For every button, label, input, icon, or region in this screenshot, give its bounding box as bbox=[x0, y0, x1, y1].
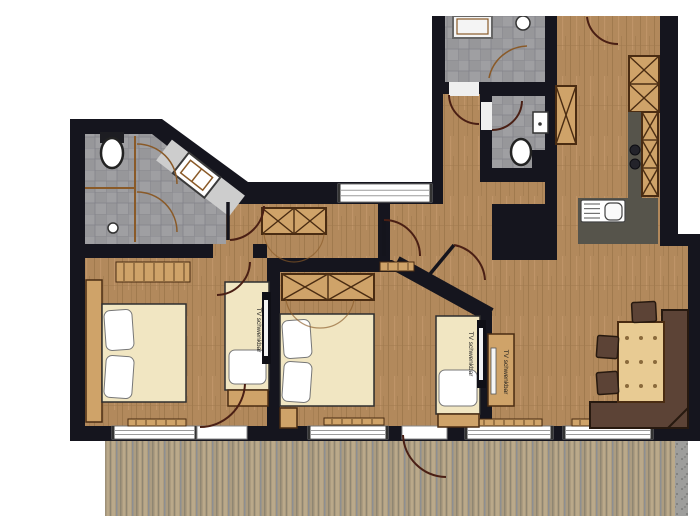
corridor-floor bbox=[443, 94, 480, 204]
balcony-deck bbox=[105, 441, 688, 516]
window-bedroom1 bbox=[112, 426, 197, 439]
window-hall bbox=[338, 184, 432, 202]
wardrobe-hallway bbox=[262, 208, 326, 234]
pillow bbox=[282, 319, 313, 359]
svg-text:TV schwenkbar: TV schwenkbar bbox=[467, 332, 474, 378]
balcony-door-bedroom2-opening bbox=[402, 426, 447, 439]
shower-pedestal-sink bbox=[516, 16, 530, 30]
tv-screen-bedroom1 bbox=[264, 300, 268, 356]
chair bbox=[631, 301, 656, 322]
toilet-wc-bowl bbox=[511, 139, 531, 165]
table-peg bbox=[639, 336, 643, 340]
sideboard-bedroom1 bbox=[116, 262, 190, 282]
kitchen-tall-cabinet bbox=[629, 56, 659, 112]
window-bedroom2 bbox=[308, 426, 388, 439]
wardrobe-bedroom2 bbox=[282, 274, 374, 300]
label-tv-bedroom1: TV schwenkbar bbox=[255, 308, 262, 354]
single-bed2-foot-bench bbox=[438, 414, 479, 427]
wc-door-threshold bbox=[481, 102, 492, 130]
table-peg bbox=[653, 360, 657, 364]
tv-screen-sideboard bbox=[491, 348, 496, 394]
floorplan: TV schwenkbarTV schwenkbarTV schwenkbar bbox=[40, 16, 700, 516]
pillow bbox=[104, 355, 135, 399]
cabinet-wc-side bbox=[556, 86, 576, 144]
bed-headboard-bench bbox=[86, 280, 102, 422]
window-living-1 bbox=[465, 426, 553, 439]
table-peg bbox=[639, 360, 643, 364]
wc-sink-drain bbox=[538, 122, 542, 126]
tv-screen-bedroom2 bbox=[479, 328, 483, 380]
chair bbox=[596, 371, 618, 394]
pillow bbox=[282, 361, 313, 403]
table-peg bbox=[653, 336, 657, 340]
chair bbox=[596, 335, 618, 358]
floor-drain bbox=[108, 223, 118, 233]
balcony-edge bbox=[675, 441, 688, 516]
svg-text:TV schwenkbar: TV schwenkbar bbox=[502, 350, 509, 396]
window-sill-bedroom1 bbox=[128, 419, 186, 426]
stove-burner-1 bbox=[630, 145, 640, 155]
wc-shaft bbox=[532, 150, 545, 168]
label-tv-sideboard: TV schwenkbar bbox=[502, 350, 509, 396]
table-peg bbox=[625, 384, 629, 388]
pillow bbox=[104, 309, 135, 351]
pillow bbox=[229, 350, 266, 384]
svg-text:TV schwenkbar: TV schwenkbar bbox=[255, 308, 262, 354]
table-peg bbox=[653, 384, 657, 388]
floorplan-svg: TV schwenkbarTV schwenkbarTV schwenkbar bbox=[40, 16, 700, 516]
table-peg bbox=[625, 360, 629, 364]
label-tv-bedroom2: TV schwenkbar bbox=[467, 332, 474, 378]
table-peg bbox=[639, 384, 643, 388]
balcony-door-bedroom1-opening bbox=[197, 426, 247, 439]
window-sill-living-1 bbox=[476, 419, 542, 426]
hall-strip-floor bbox=[480, 182, 545, 204]
window-sill-bedroom2 bbox=[324, 418, 384, 425]
stove-burner-2 bbox=[630, 159, 640, 169]
kitchen-base-cabinets bbox=[642, 112, 658, 196]
living-floor-west bbox=[390, 204, 492, 260]
toilet-bathroom-bowl bbox=[101, 138, 123, 168]
bedroom1-door-opening bbox=[213, 244, 253, 260]
kitchen-sink-bowl bbox=[605, 203, 622, 220]
hall-shelf bbox=[380, 262, 414, 271]
table-peg bbox=[625, 336, 629, 340]
single-bed1-foot-bench bbox=[228, 390, 268, 406]
nightstand-bedroom2 bbox=[280, 408, 297, 428]
shower-door-threshold bbox=[449, 82, 479, 96]
